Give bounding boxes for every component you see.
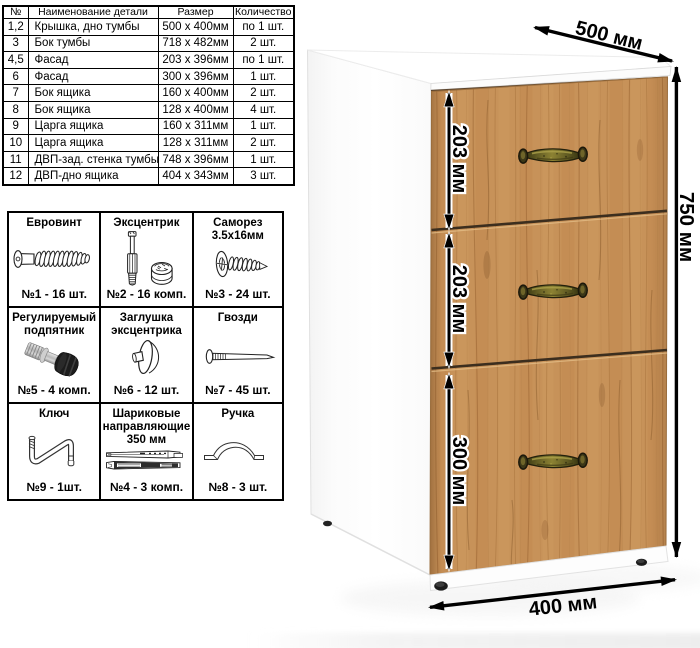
svg-text:500 мм: 500 мм	[573, 17, 645, 55]
svg-text:203 мм: 203 мм	[448, 265, 470, 334]
svg-text:300 мм: 300 мм	[448, 437, 470, 506]
svg-text:203 мм: 203 мм	[448, 125, 470, 194]
svg-text:750 мм: 750 мм	[675, 192, 698, 262]
